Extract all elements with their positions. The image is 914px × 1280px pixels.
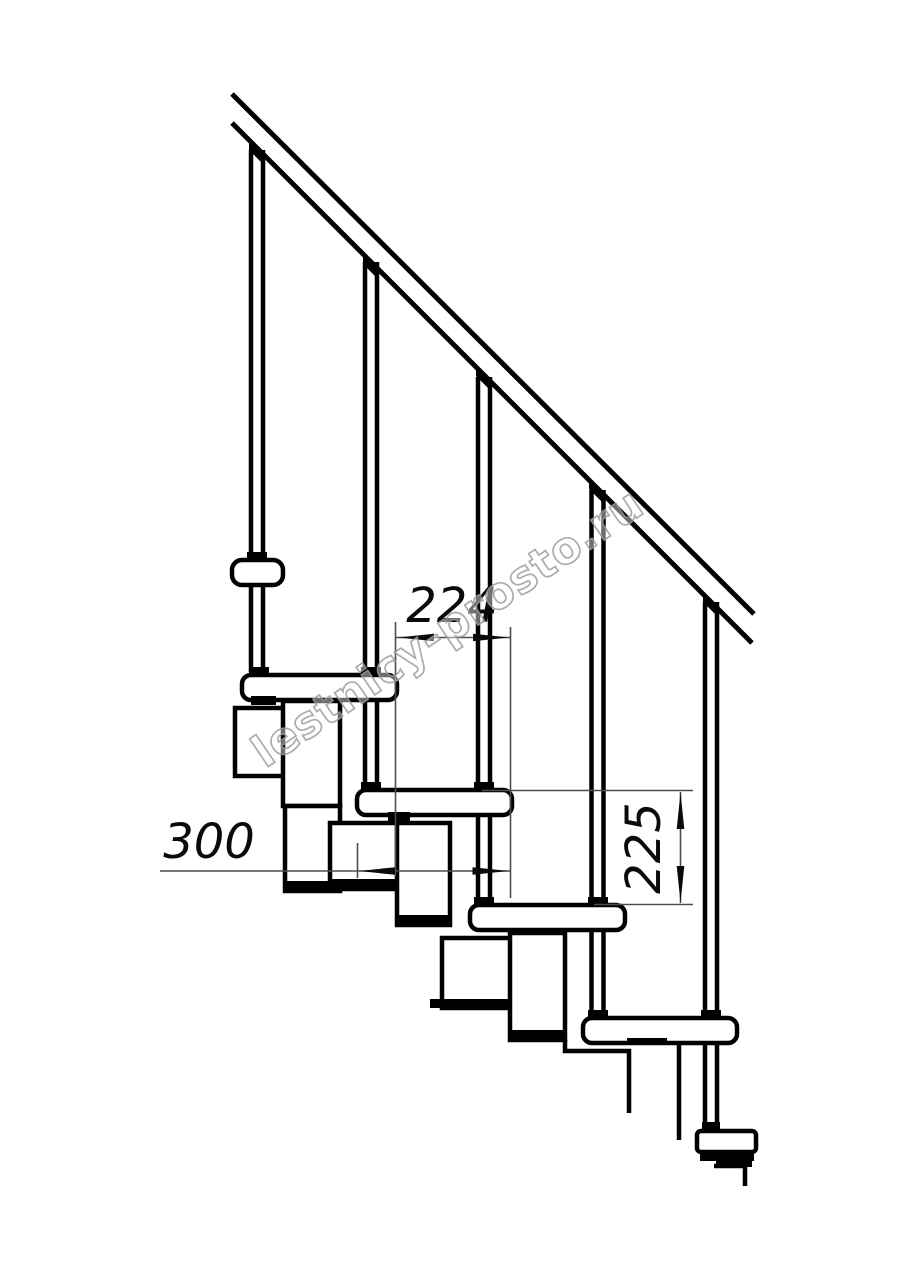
dim-label-step-rise: 225 — [616, 802, 672, 894]
module-box-3 — [510, 933, 565, 1040]
tread-2 — [357, 790, 512, 815]
module-outline-5 — [714, 1166, 745, 1186]
handrail-top-line — [232, 94, 754, 614]
support-modules — [235, 701, 754, 1186]
tread-5-partial — [697, 1131, 756, 1152]
tread-3 — [470, 905, 625, 930]
landing-nose — [232, 560, 283, 585]
module-outline-4 — [565, 1040, 629, 1113]
module-base-2 — [330, 879, 403, 889]
baluster-4 — [592, 490, 604, 1015]
arrowhead-down — [677, 866, 685, 903]
module-base-3 — [430, 999, 517, 1008]
module-base-3b — [510, 1030, 565, 1040]
staircase-drawing: 224 300 225 lestnicy-prosto.ru — [0, 0, 914, 1280]
module-box-2 — [397, 823, 450, 925]
handrail — [232, 94, 754, 643]
module-base-2b — [397, 915, 450, 925]
dim-label-tread-depth: 300 — [163, 814, 255, 870]
arrowhead-up — [677, 793, 685, 830]
baluster-5 — [705, 602, 717, 1128]
module-connector-3 — [442, 938, 517, 1008]
baluster-1 — [251, 150, 263, 672]
